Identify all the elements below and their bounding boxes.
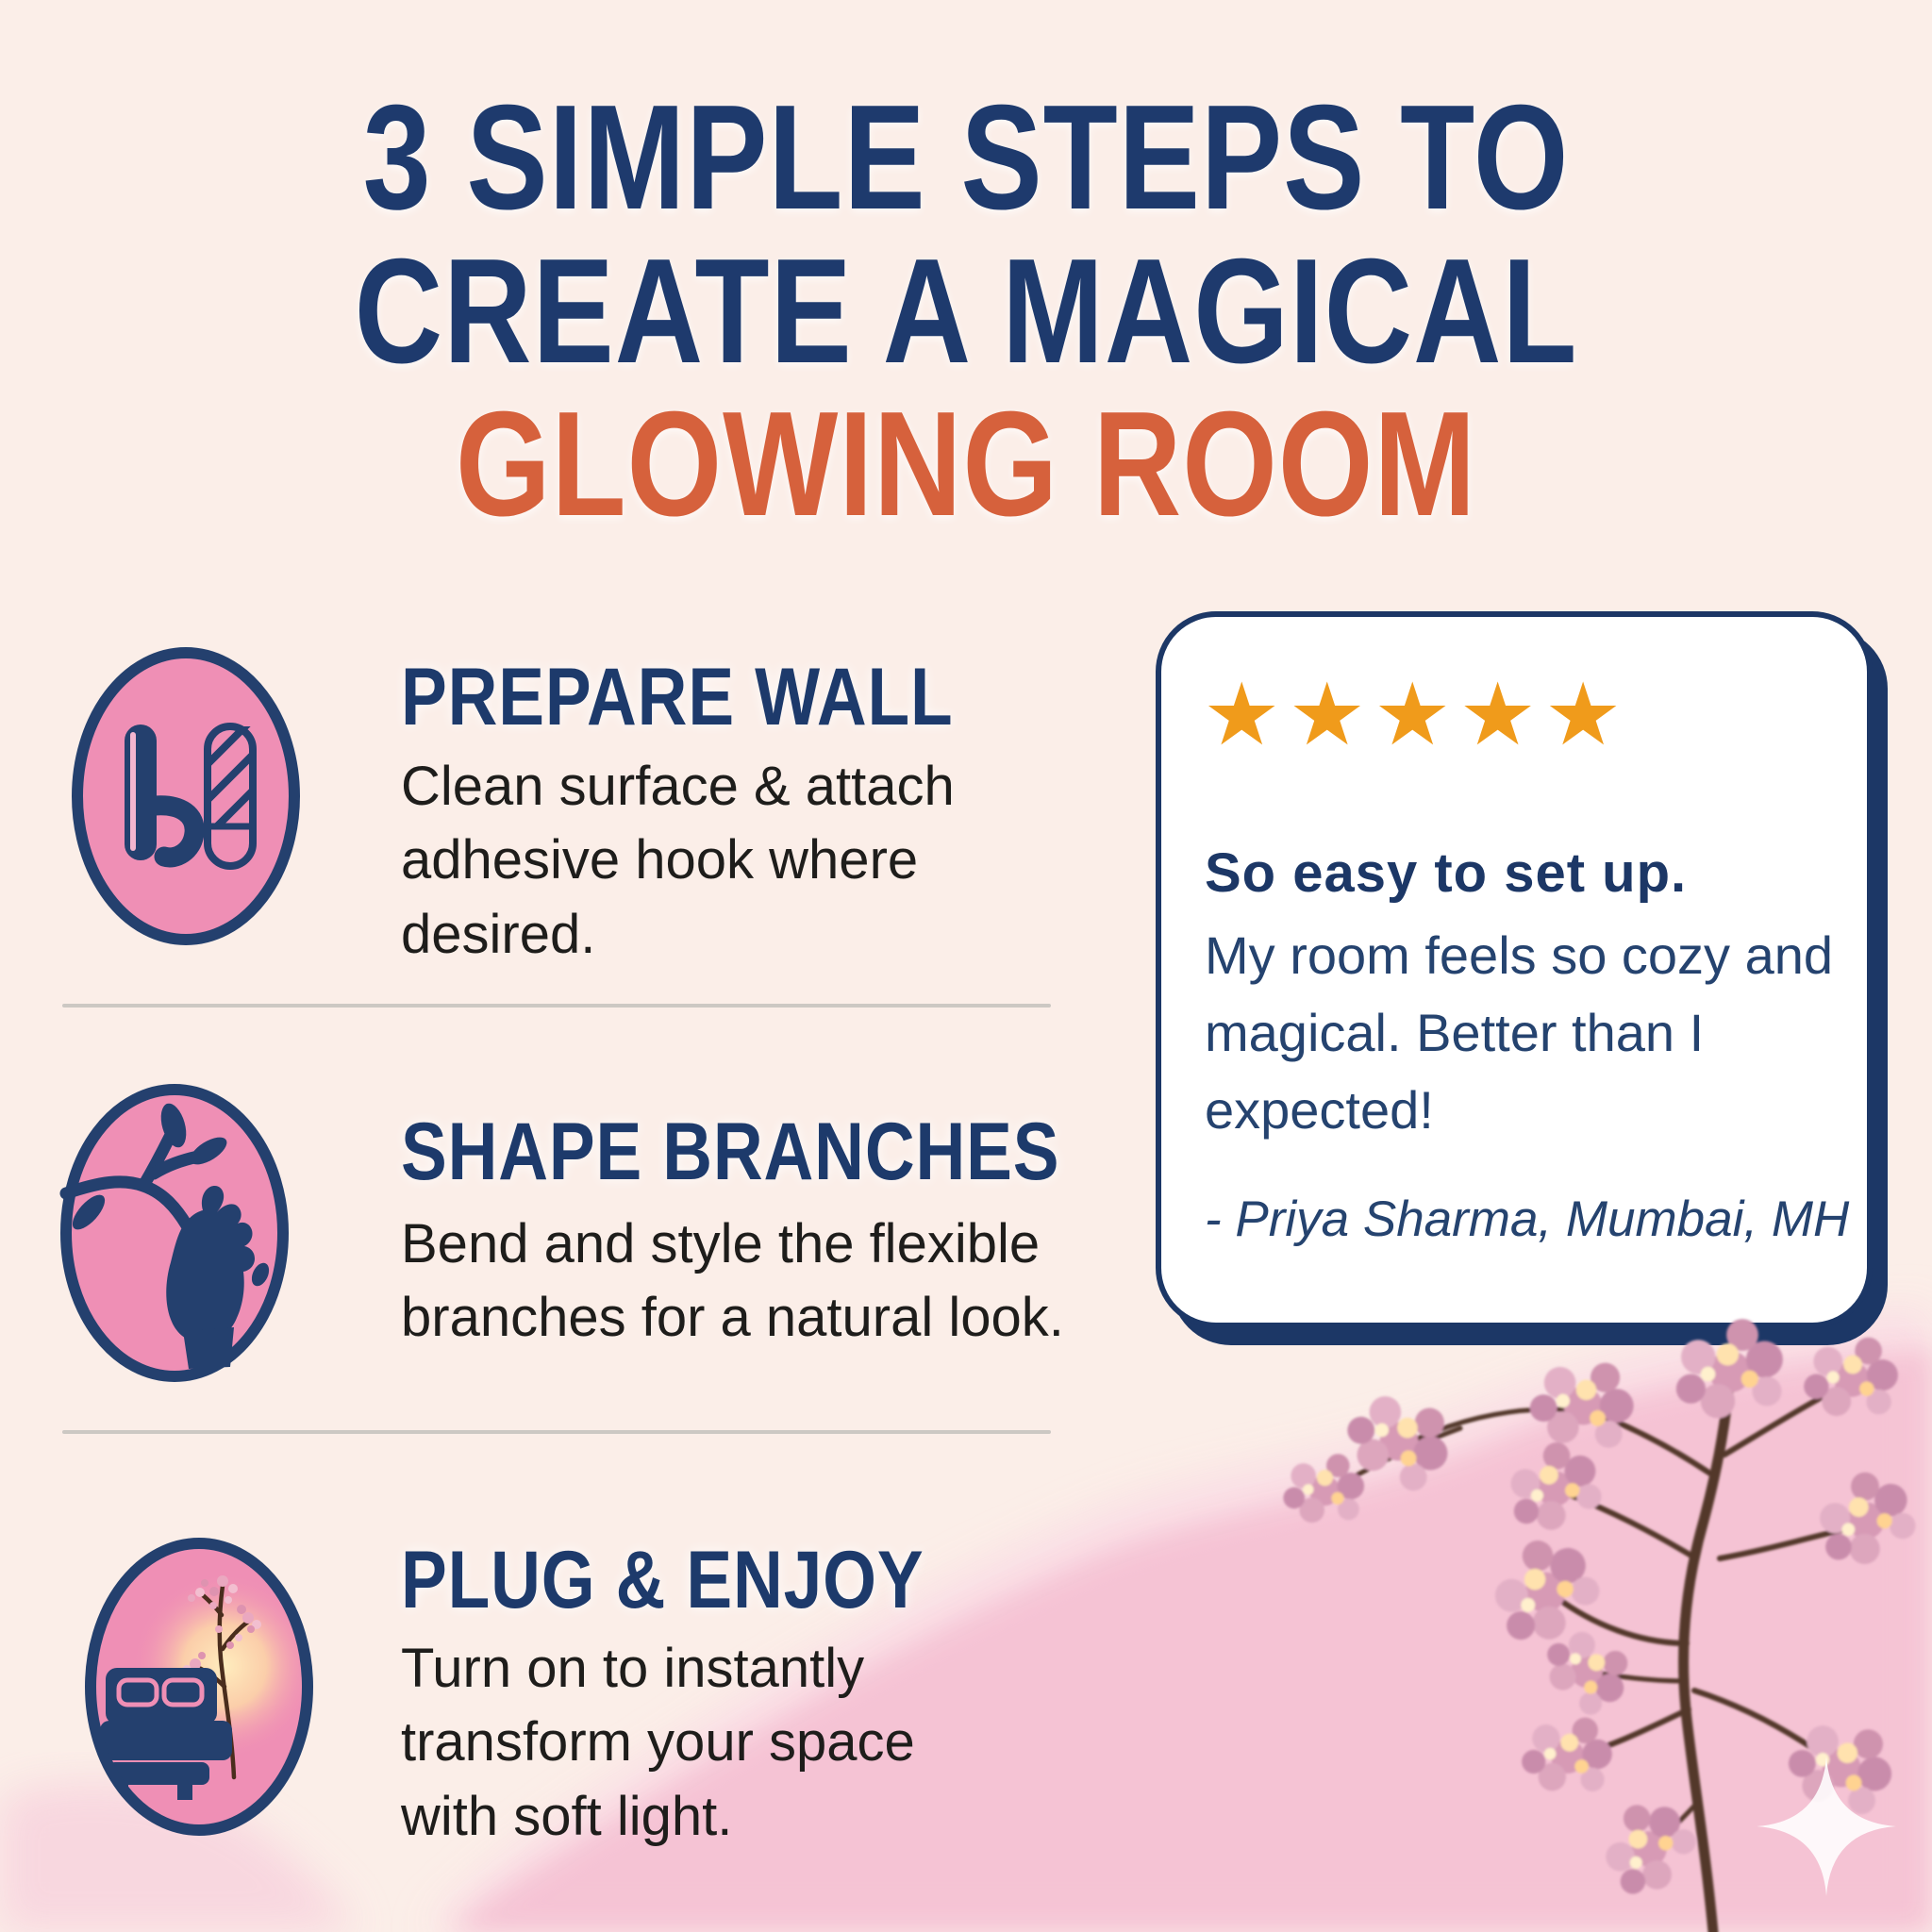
adhesive-hook-and-strip-icon [68,643,304,950]
section-divider [62,1004,1051,1008]
infographic-canvas: 3 SIMPLE STEPS TO CREATE A MAGICAL GLOWI… [0,0,1932,1932]
page-title: 3 SIMPLE STEPS TO CREATE A MAGICAL GLOWI… [174,81,1757,541]
sparkle-icon [1753,1753,1900,1900]
step-2-body: Bend and style the flexible branches for… [401,1207,1174,1356]
customer-review-card: ★★★★★ So easy to set up. My room feels s… [1156,611,1873,1328]
review-body: My room feels so cozy and magical. Bette… [1205,917,1842,1148]
bed-with-glowing-tree-icon [81,1534,317,1840]
title-line-2: CREATE A MAGICAL [174,235,1757,389]
step-1-body: Clean surface & attach adhesive hook whe… [401,750,995,972]
hand-bending-branch-icon [57,1080,292,1387]
review-headline: So easy to set up. [1205,841,1687,905]
step-2-heading: SHAPE BRANCHES [401,1106,1059,1199]
five-star-rating-icons: ★★★★★ [1203,672,1629,758]
review-attribution: - Priya Sharma, Mumbai, MH [1205,1191,1849,1248]
title-line-3: GLOWING ROOM [174,388,1757,541]
step-3-body: Turn on to instantly transform your spac… [401,1632,995,1854]
section-divider [62,1430,1051,1434]
step-1-heading: PREPARE WALL [401,651,954,744]
title-line-1: 3 SIMPLE STEPS TO [174,81,1757,235]
step-3-heading: PLUG & ENJOY [401,1534,924,1627]
